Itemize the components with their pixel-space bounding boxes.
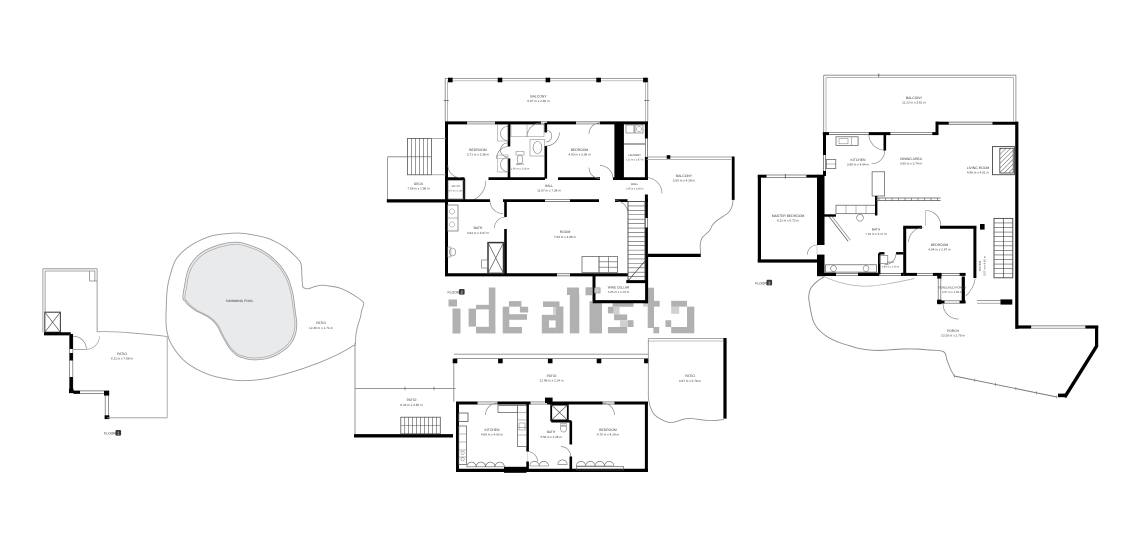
svg-text:BALCONY: BALCONY bbox=[530, 95, 547, 99]
svg-text:FLOOR: FLOOR bbox=[104, 432, 116, 436]
svg-text:3.58 m x 4.28 m: 3.58 m x 4.28 m bbox=[540, 435, 562, 439]
svg-text:PATIO: PATIO bbox=[117, 352, 127, 356]
svg-text:PATIO: PATIO bbox=[547, 374, 557, 378]
svg-text:6.34 m x 3.56 m: 6.34 m x 3.56 m bbox=[400, 403, 423, 407]
svg-text:MASTER BEDROOM: MASTER BEDROOM bbox=[772, 214, 805, 218]
svg-text:BEDROOM: BEDROOM bbox=[599, 428, 617, 432]
svg-text:3.63 m x 3.67 m: 3.63 m x 3.67 m bbox=[467, 231, 490, 235]
svg-text:3.57 m x 4.60 m: 3.57 m x 4.60 m bbox=[983, 255, 987, 276]
svg-text:6.11 m x 7.68 m: 6.11 m x 7.68 m bbox=[111, 356, 133, 360]
svg-text:0.86 m x 1.59 m: 0.86 m x 1.59 m bbox=[882, 266, 899, 269]
svg-text:5.37 m x 1.58 m: 5.37 m x 1.58 m bbox=[942, 290, 963, 294]
svg-text:4.65 m x 4.03 m: 4.65 m x 4.03 m bbox=[481, 432, 504, 436]
svg-text:5.55 m x 4.28 m: 5.55 m x 4.28 m bbox=[673, 178, 696, 182]
svg-text:1.66 m x 3.18 m: 1.66 m x 3.18 m bbox=[511, 168, 530, 171]
svg-text:11.22 m x 3.61 m: 11.22 m x 3.61 m bbox=[902, 100, 926, 104]
svg-text:1.11 m x 1.87 m: 1.11 m x 1.87 m bbox=[626, 158, 644, 161]
svg-text:6.11 m x 5.73 m: 6.11 m x 5.73 m bbox=[777, 218, 799, 222]
svg-text:3.71 m x 3.38 m: 3.71 m x 3.38 m bbox=[467, 152, 490, 156]
svg-text:ROOM: ROOM bbox=[560, 230, 571, 234]
svg-text:BALCONY: BALCONY bbox=[906, 96, 923, 100]
svg-text:HALL: HALL bbox=[545, 184, 554, 188]
svg-text:PATIO: PATIO bbox=[316, 321, 326, 325]
svg-text:12.98 m x 2.14 m: 12.98 m x 2.14 m bbox=[540, 378, 564, 382]
svg-text:KITCHEN: KITCHEN bbox=[485, 428, 500, 432]
svg-text:DECK: DECK bbox=[414, 182, 424, 186]
svg-text:FLOOR: FLOOR bbox=[755, 281, 767, 285]
svg-text:BATH: BATH bbox=[547, 430, 556, 434]
svg-text:0.97 m x 1.30 m: 0.97 m x 1.30 m bbox=[447, 189, 464, 192]
svg-text:4.76 m x 4.28 m: 4.76 m x 4.28 m bbox=[597, 432, 620, 436]
svg-text:0.97 m x 2.46 m: 0.97 m x 2.46 m bbox=[527, 99, 550, 103]
svg-text:7.63 m x 4.66 m: 7.63 m x 4.66 m bbox=[554, 235, 577, 239]
svg-text:4.04 m x 2.97 m: 4.04 m x 2.97 m bbox=[928, 247, 951, 251]
svg-text:7.68 m x 1.98 m: 7.68 m x 1.98 m bbox=[407, 186, 430, 190]
svg-text:BATH: BATH bbox=[474, 226, 483, 230]
svg-text:4.90 m x 3.38 m: 4.90 m x 3.38 m bbox=[568, 152, 591, 156]
svg-text:LAUNDRY: LAUNDRY bbox=[628, 154, 641, 157]
svg-text:10.26 m x 3.79 m: 10.26 m x 3.79 m bbox=[941, 333, 965, 337]
svg-text:WALL: WALL bbox=[631, 183, 639, 186]
svg-text:7.19 m x 3.17 m: 7.19 m x 3.17 m bbox=[865, 232, 887, 236]
svg-text:FOYER: FOYER bbox=[978, 260, 982, 271]
svg-text:BEDROOM: BEDROOM bbox=[469, 148, 487, 152]
svg-text:BEDROOM: BEDROOM bbox=[931, 243, 949, 247]
svg-text:3.65 m x 3.74 m: 3.65 m x 3.74 m bbox=[900, 162, 923, 166]
svg-text:ENTRY: ENTRY bbox=[452, 185, 461, 188]
svg-text:PATIO: PATIO bbox=[685, 374, 695, 378]
svg-text:SWIMMING POOL: SWIMMING POOL bbox=[226, 299, 254, 303]
svg-text:PATIO: PATIO bbox=[407, 398, 417, 402]
svg-text:11.67 m x 7.38 m: 11.67 m x 7.38 m bbox=[537, 188, 561, 192]
svg-text:1.45 m x 3.48 m: 1.45 m x 3.48 m bbox=[626, 188, 644, 191]
svg-text:BALCONY: BALCONY bbox=[676, 174, 693, 178]
svg-text:BEDROOM: BEDROOM bbox=[571, 148, 589, 152]
svg-text:3.68 m x 4.94 m: 3.68 m x 4.94 m bbox=[847, 163, 870, 167]
svg-text:FLOOR: FLOOR bbox=[448, 291, 460, 295]
svg-text:DINING AREA: DINING AREA bbox=[900, 157, 923, 161]
svg-text:5.25 m x 1.72 m: 5.25 m x 1.72 m bbox=[608, 290, 630, 294]
svg-text:4.96 m x 4.51 m: 4.96 m x 4.51 m bbox=[967, 170, 990, 174]
svg-text:BATH: BATH bbox=[872, 227, 881, 231]
svg-text:PORCH: PORCH bbox=[947, 329, 960, 333]
svg-text:LIVING ROOM: LIVING ROOM bbox=[967, 166, 990, 170]
svg-text:BATH: BATH bbox=[887, 261, 894, 264]
svg-text:4.97 m x 5.78 m: 4.97 m x 5.78 m bbox=[679, 379, 702, 383]
svg-text:KITCHEN: KITCHEN bbox=[851, 158, 866, 162]
svg-text:12.46 m x 1.71 m: 12.46 m x 1.71 m bbox=[309, 326, 333, 330]
svg-text:SCREENED PORCH: SCREENED PORCH bbox=[938, 286, 966, 290]
svg-text:WINE CELLAR: WINE CELLAR bbox=[608, 285, 630, 289]
